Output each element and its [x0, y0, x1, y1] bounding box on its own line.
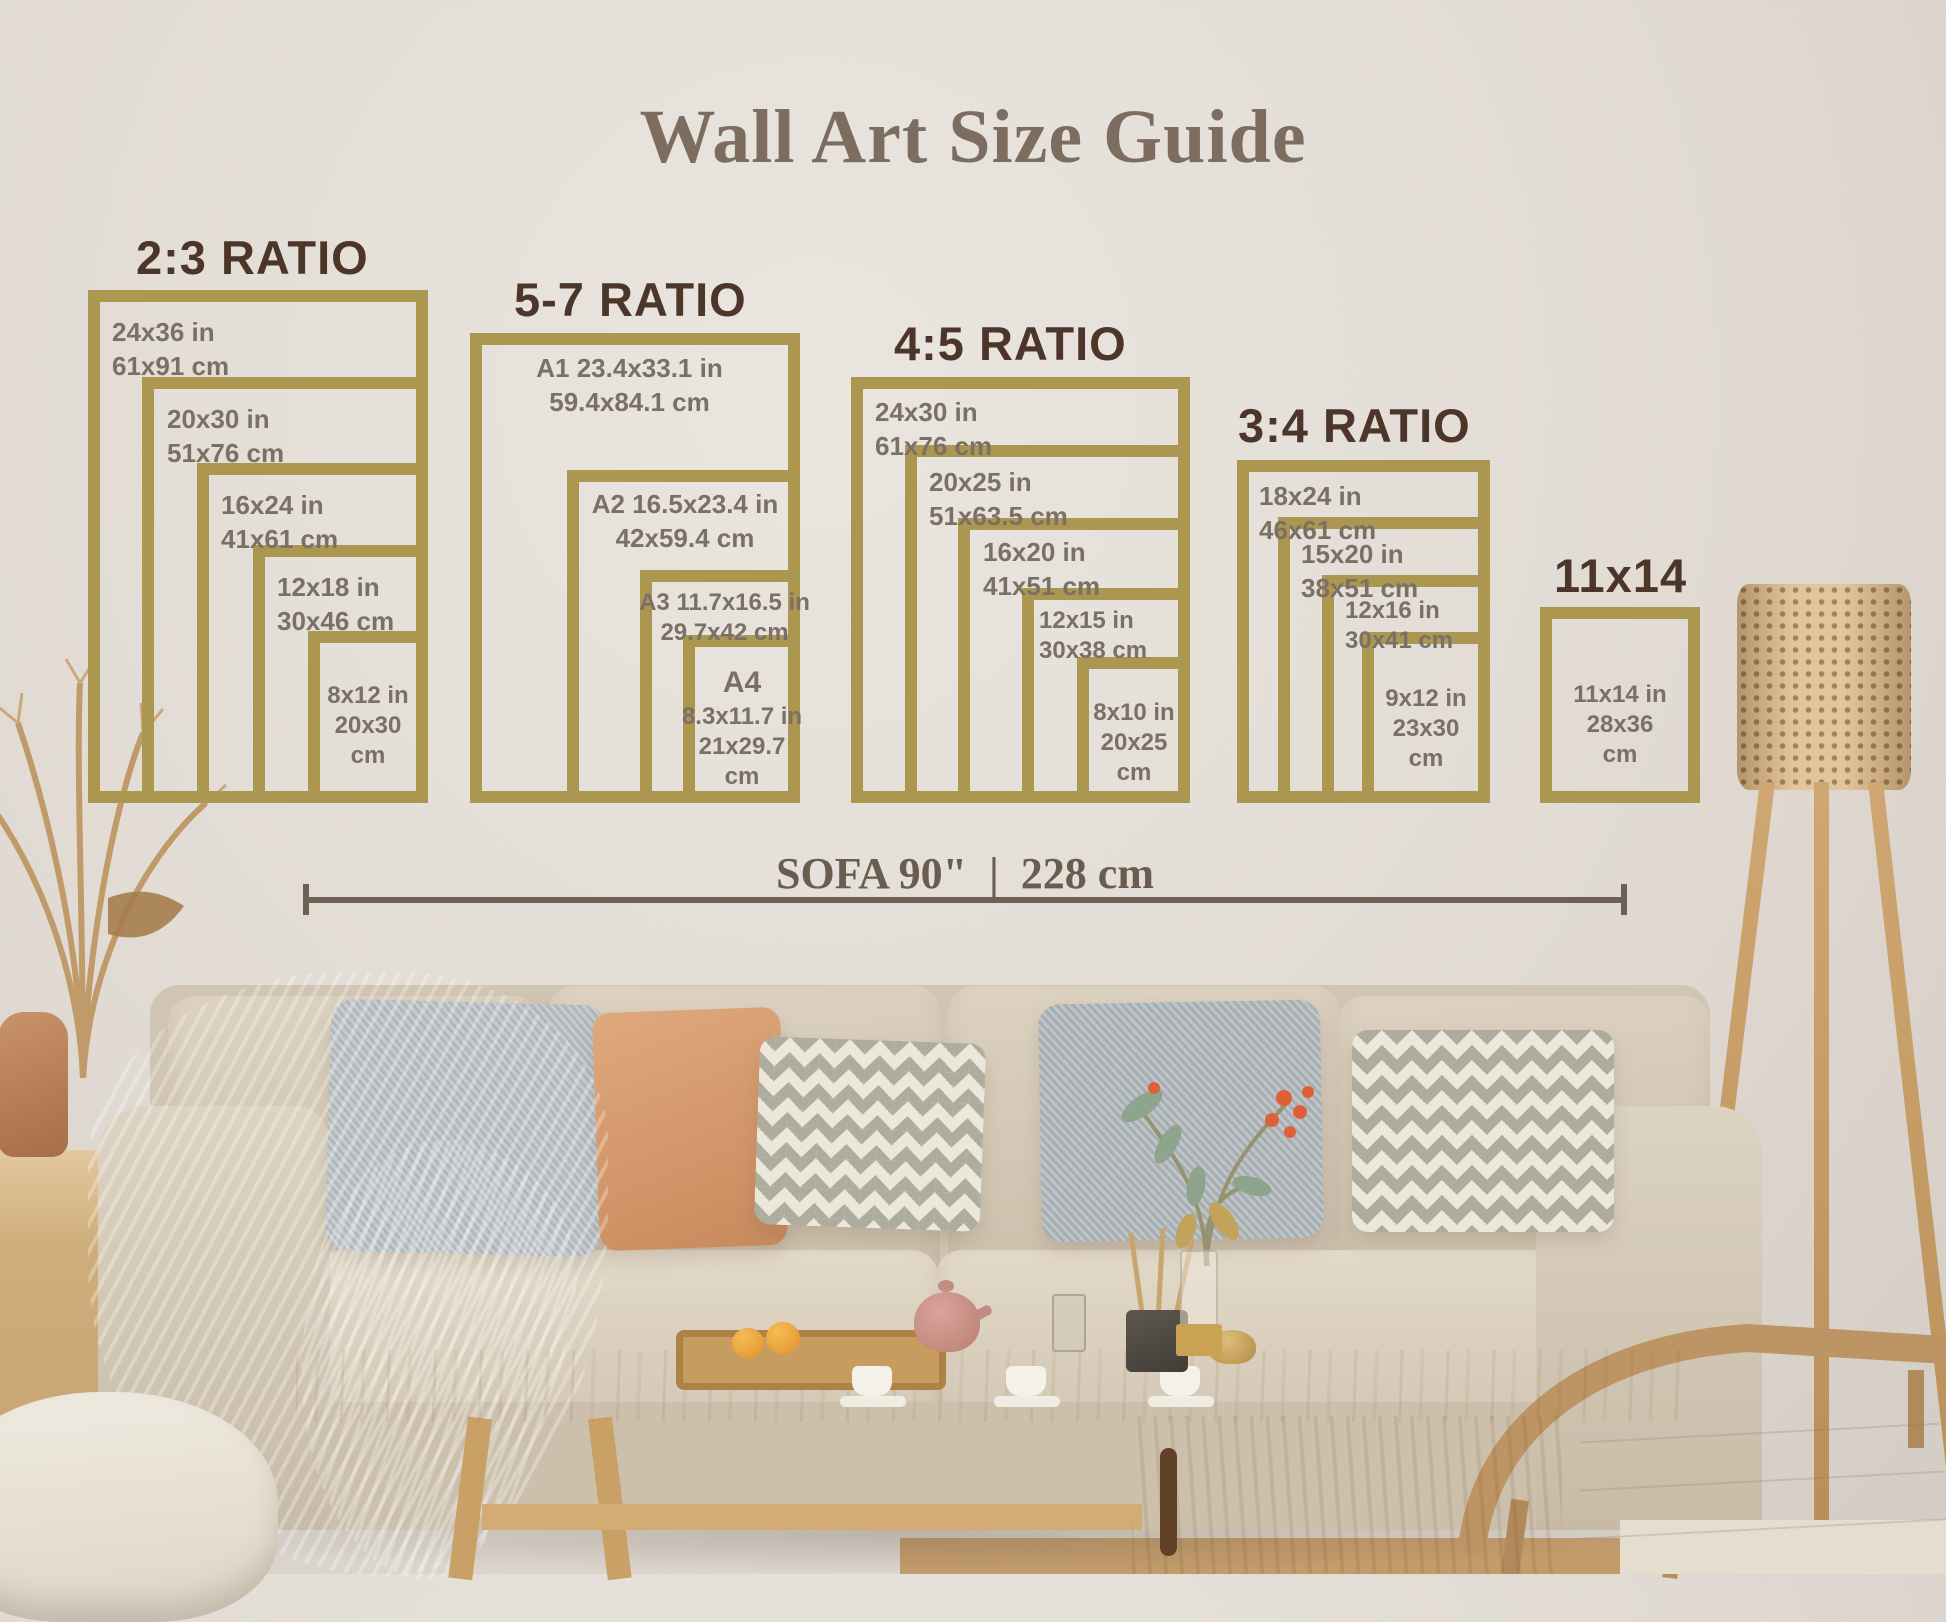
saucer	[1148, 1396, 1214, 1407]
size-cm: 21x29.7	[664, 732, 820, 762]
size-in: A1 23.4x33.1 in	[492, 352, 767, 386]
pillow-chevron-right	[1352, 1030, 1614, 1232]
size-cm: 42x59.4 cm	[574, 522, 796, 556]
sofa-width-inches: SOFA 90"	[776, 848, 967, 899]
orange-fruit	[732, 1328, 764, 1358]
size-cm: 41x51 cm	[983, 570, 1100, 604]
size-cm: 20x30	[320, 711, 416, 741]
size-in: 20x30 in	[167, 403, 284, 437]
saucer	[840, 1396, 906, 1407]
frame-label-20x30: 20x30 in 51x76 cm	[167, 403, 284, 471]
size-cm: 59.4x84.1 cm	[492, 386, 767, 420]
size-cm-unit: cm	[664, 762, 820, 792]
size-cm: 41x61 cm	[221, 523, 338, 557]
frame-label-12x16: 12x16 in 30x41 cm	[1345, 596, 1453, 656]
size-cm-unit: cm	[1552, 740, 1688, 770]
saucer	[994, 1396, 1060, 1407]
size-in: 24x36 in	[112, 316, 229, 350]
frame-label-a2: A2 16.5x23.4 in 42x59.4 cm	[574, 488, 796, 556]
size-cm: 23x30	[1374, 714, 1478, 744]
size-in: 12x18 in	[277, 571, 394, 605]
table-cabinet	[1132, 1416, 1562, 1574]
table-shelf	[482, 1504, 1142, 1530]
coffee-table	[296, 1350, 1692, 1422]
frame-label-9x12: 9x12 in 23x30 cm	[1374, 684, 1478, 774]
size-cm: 30x46 cm	[277, 605, 394, 639]
vase-band	[1176, 1324, 1222, 1356]
size-cm: 20x25	[1089, 728, 1179, 758]
size-cm-unit: cm	[320, 741, 416, 771]
size-cm-unit: cm	[1089, 758, 1179, 788]
teacup	[852, 1366, 892, 1396]
frame-label-a4: A4 8.3x11.7 in 21x29.7 cm	[664, 664, 820, 792]
sofa-width-cm: 228 cm	[1021, 848, 1154, 899]
size-in: 11x14 in	[1552, 680, 1688, 710]
frame-label-a3: A3 11.7x16.5 in 29.7x42 cm	[622, 588, 827, 648]
lamp-shade	[1737, 584, 1911, 790]
frame-label-8x10: 8x10 in 20x25 cm	[1089, 698, 1179, 788]
size-cm: 29.7x42 cm	[622, 618, 827, 648]
frame-label-16x24: 16x24 in 41x61 cm	[221, 489, 338, 557]
ratio-header-5-7: 5-7 RATIO	[514, 272, 747, 327]
plant-vase	[0, 1012, 68, 1157]
size-in: 16x24 in	[221, 489, 338, 523]
sofa-measure: SOFA 90" | 228 cm	[305, 848, 1625, 899]
berry-branch	[1056, 1036, 1366, 1266]
size-in: 8x10 in	[1089, 698, 1179, 728]
teacup	[1006, 1366, 1046, 1396]
size-cm: 30x38 cm	[1039, 636, 1147, 666]
armchair-cushion	[1576, 1415, 1946, 1586]
frame-label-8x12: 8x12 in 20x30 cm	[320, 681, 416, 771]
size-cm: 30x41 cm	[1345, 626, 1453, 656]
measure-separator: |	[989, 848, 999, 899]
size-cm: 51x63.5 cm	[929, 500, 1068, 534]
ratio-header-4-5: 4:5 RATIO	[894, 316, 1127, 371]
size-cm-unit: cm	[1374, 744, 1478, 774]
frame-label-12x15: 12x15 in 30x38 cm	[1039, 606, 1147, 666]
size-in: 16x20 in	[983, 536, 1100, 570]
size-in: 9x12 in	[1374, 684, 1478, 714]
size-in: 12x16 in	[1345, 596, 1453, 626]
page-title: Wall Art Size Guide	[0, 94, 1946, 181]
frame-label-24x30: 24x30 in 61x76 cm	[875, 396, 992, 464]
size-cm: 51x76 cm	[167, 437, 284, 471]
frame-label-a1: A1 23.4x33.1 in 59.4x84.1 cm	[492, 352, 767, 420]
size-in: A3 11.7x16.5 in	[622, 588, 827, 618]
frame-label-12x18: 12x18 in 30x46 cm	[277, 571, 394, 639]
cabinet-handle	[1160, 1448, 1177, 1556]
size-in: A2 16.5x23.4 in	[574, 488, 796, 522]
frame-label-20x25: 20x25 in 51x63.5 cm	[929, 466, 1068, 534]
tea-tray	[676, 1330, 946, 1390]
size-cm: 28x36	[1552, 710, 1688, 740]
glass-cup	[1052, 1294, 1086, 1352]
size-in: 15x20 in	[1301, 538, 1418, 572]
paper-size-name: A4	[664, 664, 820, 702]
size-in: 18x24 in	[1259, 480, 1376, 514]
size-cm: 61x76 cm	[875, 430, 992, 464]
size-in: 8.3x11.7 in	[664, 702, 820, 732]
ratio-header-11x14: 11x14	[1554, 548, 1687, 603]
teapot	[914, 1292, 980, 1352]
size-in: 20x25 in	[929, 466, 1068, 500]
ratio-header-2-3: 2:3 RATIO	[136, 230, 369, 285]
pillow-chevron-left	[754, 1036, 986, 1232]
size-in: 8x12 in	[320, 681, 416, 711]
size-cm: 61x91 cm	[112, 350, 229, 384]
frame-label-16x20: 16x20 in 41x51 cm	[983, 536, 1100, 604]
size-in: 24x30 in	[875, 396, 992, 430]
size-in: 12x15 in	[1039, 606, 1147, 636]
frame-label-24x36: 24x36 in 61x91 cm	[112, 316, 229, 384]
orange-fruit	[766, 1322, 800, 1354]
ratio-header-3-4: 3:4 RATIO	[1238, 398, 1471, 453]
frame-label-11x14: 11x14 in 28x36 cm	[1552, 680, 1688, 770]
